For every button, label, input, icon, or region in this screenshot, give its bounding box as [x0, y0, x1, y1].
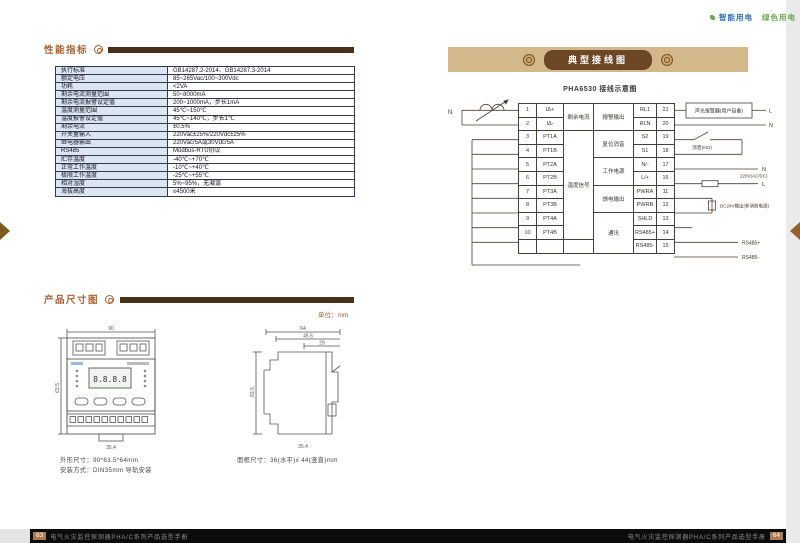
terminal-name-empty	[537, 239, 564, 253]
page-number-left: 63	[33, 532, 46, 541]
header-tagline: 智能用电 绿色用电	[710, 12, 796, 23]
terminal-no: 7	[519, 185, 537, 199]
diagram-title: PHA6530 接线示意图	[500, 84, 700, 94]
terminal-name: PWRA	[634, 185, 657, 199]
seal-icon	[105, 295, 114, 304]
table-row: RS485Modbus-RTU协议	[56, 147, 355, 155]
alarm-line-label: L	[769, 109, 772, 115]
spec-label-cell: 执行标准	[56, 67, 168, 75]
spec-value-cell: GB14287.2-2014、GB14287.3-2014	[168, 67, 355, 75]
spec-value-cell: -25℃~+55℃	[168, 172, 355, 180]
spec-value-cell: 200~1000mA，步长1mA	[168, 99, 355, 107]
terminal-no: 10	[519, 226, 537, 240]
spec-table: 执行标准GB14287.2-2014、GB14287.3-2014 额定电压85…	[55, 66, 355, 197]
spec-label-cell: 温度报警设定值	[56, 115, 168, 123]
lcd-display: 8.8.8.8	[93, 375, 127, 384]
terminal-no: 12	[657, 199, 675, 213]
table-row: 功耗<2VA	[56, 83, 355, 91]
terminal-name: RL1	[634, 104, 657, 118]
unit-label: 单位：mm	[318, 309, 348, 319]
leaf-icon	[710, 15, 715, 20]
fold-arrow-right-icon	[790, 222, 800, 240]
table-row: 1 IΔ+ 剩余电流 报警输出 RL1 21	[519, 104, 675, 118]
terminal-name: S2	[634, 131, 657, 145]
section-bar	[108, 47, 354, 53]
side-view-drawing: 64 45.5 29 63.5 35.4	[248, 326, 348, 454]
table-row: 7 PT3A 馈电输出 PWRA 11	[519, 185, 675, 199]
spec-value-cell: 45℃~150℃	[168, 107, 355, 115]
terminal-no: 21	[657, 104, 675, 118]
spec-value-cell: -40℃~+70℃	[168, 156, 355, 164]
table-row: 继电器输出220Vac/5A或30Vdc/5A	[56, 139, 355, 147]
spec-label-cell: RS485	[56, 147, 168, 155]
table-row: 海拔高度≤4500米	[56, 188, 355, 196]
feed-label: DC24V输出(非消防电源)	[720, 203, 770, 210]
alarm-neutral-label: N	[769, 123, 773, 129]
caption-panel: 面框尺寸：36(水平)x 44(竖直)mm	[237, 455, 338, 464]
terminal-name: PWRB	[634, 199, 657, 213]
table-row: 3 PT1A 温度信号 复位消音 S2 19	[519, 131, 675, 145]
tagline-smart: 智能用电	[719, 12, 753, 23]
terminal-no: 3	[519, 131, 537, 145]
terminal-no: 9	[519, 212, 537, 226]
coin-icon	[523, 54, 535, 66]
terminal-no: 14	[657, 226, 675, 240]
spec-label-cell: 贮存温度	[56, 156, 168, 164]
caption-mount: 安装方式：DIN35mm 导轨安装	[60, 465, 152, 474]
front-dim-left: 63.5	[55, 383, 61, 393]
terminal-table: 1 IΔ+ 剩余电流 报警输出 RL1 21 2 IΔ- RLN 20 3 PT…	[518, 103, 675, 254]
terminal-no: 8	[519, 199, 537, 213]
spec-label-cell: 剩余电流测量范围	[56, 91, 168, 99]
spec-label-cell: 温度测量范围	[56, 107, 168, 115]
section-bar	[120, 297, 354, 303]
terminal-no: 6	[519, 171, 537, 185]
group-residual-current: 剩余电流	[564, 104, 594, 131]
table-row: 额定电压85~265Vac/100~300Vdc	[56, 75, 355, 83]
rs485-plus-label: RS485+	[742, 241, 760, 247]
footer-bar: 63 电气火灾监控探测器PHA/C系列产品选型手册 电气火灾监控探测器PHA/C…	[30, 529, 786, 543]
section-title-performance: 性能指标	[44, 42, 88, 56]
side-dim-inner: 29	[319, 341, 325, 347]
fuse-icon	[702, 181, 718, 187]
side-dim-bottom: 35.4	[298, 444, 308, 450]
spec-value-cell: 220Vac/5A或30Vdc/5A	[168, 139, 355, 147]
spec-value-cell: 5%~95%，无凝露	[168, 180, 355, 188]
spec-value-cell: -10℃~+40℃	[168, 164, 355, 172]
table-row: 9 PT4A 通讯 SHLD 13	[519, 212, 675, 226]
terminal-no: 18	[657, 144, 675, 158]
terminal-name: N/-	[634, 158, 657, 172]
terminal-name: PT1B	[537, 144, 564, 158]
group-reset-mute: 复位消音	[594, 131, 634, 158]
caption-size: 外形尺寸：90*63.5*64mm	[60, 455, 138, 464]
group-empty	[564, 239, 594, 253]
table-row: 剩余电流测量范围50~8000mA	[56, 91, 355, 99]
terminal-name: SHLD	[634, 212, 657, 226]
spec-label-cell: 继电器输出	[56, 139, 168, 147]
terminal-name: RS485+	[634, 226, 657, 240]
spec-value-cell: ±0.5%	[168, 123, 355, 131]
group-alarm-output: 报警输出	[594, 104, 634, 131]
terminal-name: IΔ+	[537, 104, 564, 118]
terminal-name: RS485-	[634, 239, 657, 253]
terminal-no: 19	[657, 131, 675, 145]
terminal-no: 16	[657, 171, 675, 185]
alarm-box-label: 声光报警器(用户自备)	[695, 108, 744, 115]
spec-label-cell: 剩余电流报警设定值	[56, 99, 168, 107]
front-dim-bottom: 35.4	[106, 445, 116, 451]
terminal-no: 4	[519, 144, 537, 158]
terminal-name: S1	[634, 144, 657, 158]
spec-value-cell: Modbus-RTU协议	[168, 147, 355, 155]
terminal-name: PT3B	[537, 199, 564, 213]
terminal-name: PT2B	[537, 171, 564, 185]
footer-right-text: 电气火灾监控探测器PHA/C系列产品选型手册	[628, 532, 766, 541]
group-feed-output: 馈电输出	[594, 185, 634, 212]
terminal-no-empty	[519, 239, 537, 253]
spec-label-cell: 极限工作温度	[56, 172, 168, 180]
seal-icon	[94, 45, 103, 54]
terminal-name: PT4B	[537, 226, 564, 240]
terminal-name: PT3A	[537, 185, 564, 199]
terminal-name: PT2A	[537, 158, 564, 172]
side-dim-top: 64	[300, 326, 306, 332]
spec-label-cell: 额定电压	[56, 75, 168, 83]
banner-typical-wiring: 典型接线图	[448, 47, 748, 72]
mute-label: 消音(NO)	[692, 144, 712, 151]
terminal-name: PT4A	[537, 212, 564, 226]
spec-value-cell: 220Vac±25%/220Vdc±25%	[168, 131, 355, 139]
table-row: 贮存温度-40℃~+70℃	[56, 156, 355, 164]
spec-label-cell: 开关量输入	[56, 131, 168, 139]
table-row: 剩余电流报警设定值200~1000mA，步长1mA	[56, 99, 355, 107]
spec-label-cell: 正常工作温度	[56, 164, 168, 172]
spec-value-cell: <2VA	[168, 83, 355, 91]
footer-right: 电气火灾监控探测器PHA/C系列产品选型手册 64	[628, 532, 783, 541]
rs485-minus-label: RS485-	[742, 255, 759, 261]
table-row: 5 PT2A 工作电源 N/- 17	[519, 158, 675, 172]
terminal-no: 20	[657, 117, 675, 131]
table-row: 执行标准GB14287.2-2014、GB14287.3-2014	[56, 67, 355, 75]
front-dim-top: 90	[108, 326, 114, 332]
terminal-no: 17	[657, 158, 675, 172]
fold-arrow-left-icon	[0, 222, 10, 240]
front-view-drawing: 90 63.5 35.4 8.8.8.8	[55, 326, 167, 454]
spec-value-cell: 45℃~140℃，步长1℃	[168, 115, 355, 123]
terminal-name: IΔ-	[537, 117, 564, 131]
page-number-right: 64	[770, 532, 783, 541]
section-title-dimensions: 产品尺寸图	[44, 292, 99, 306]
side-dim-mid: 45.5	[303, 334, 313, 340]
banner-title: 典型接线图	[544, 50, 652, 70]
spec-label-cell: 功耗	[56, 83, 168, 91]
spec-label-cell: 相对湿度	[56, 180, 168, 188]
group-comms: 通讯	[594, 212, 634, 253]
group-temperature-signal: 温度信号	[564, 131, 594, 240]
corner-strip	[0, 529, 30, 543]
footer-left: 63 电气火灾监控探测器PHA/C系列产品选型手册	[33, 532, 188, 541]
spec-label-cell: 剩余电流	[56, 123, 168, 131]
table-row: 相对湿度5%~95%，无凝露	[56, 180, 355, 188]
tagline-green: 绿色用电	[762, 12, 796, 23]
spec-label-cell: 海拔高度	[56, 188, 168, 196]
terminal-name: RLN	[634, 117, 657, 131]
table-row: 温度报警设定值45℃~140℃，步长1℃	[56, 115, 355, 123]
terminal-no: 5	[519, 158, 537, 172]
terminal-no: 15	[657, 239, 675, 253]
neutral-label: N	[448, 110, 452, 116]
spec-value-cell: 85~265Vac/100~300Vdc	[168, 75, 355, 83]
footer-left-text: 电气火灾监控探测器PHA/C系列产品选型手册	[50, 532, 188, 541]
section-header-performance: 性能指标	[44, 42, 103, 56]
side-dim-left: 63.5	[250, 387, 256, 397]
power-voltage-label: 220V(AC/DC)	[740, 174, 768, 179]
table-row: 温度测量范围45℃~150℃	[56, 107, 355, 115]
table-row: 剩余电流±0.5%	[56, 123, 355, 131]
terminal-no: 11	[657, 185, 675, 199]
power-n-label: N	[762, 167, 766, 173]
terminal-name: PT1A	[537, 131, 564, 145]
terminal-no: 13	[657, 212, 675, 226]
spec-value-cell: 50~8000mA	[168, 91, 355, 99]
table-row: 正常工作温度-10℃~+40℃	[56, 164, 355, 172]
spec-value-cell: ≤4500米	[168, 188, 355, 196]
terminal-no: 1	[519, 104, 537, 118]
terminal-no: 2	[519, 117, 537, 131]
terminal-name: L/+	[634, 171, 657, 185]
section-header-dimensions: 产品尺寸图	[44, 292, 114, 306]
group-working-power: 工作电源	[594, 158, 634, 185]
coin-icon	[661, 54, 673, 66]
power-l-label: L	[762, 182, 765, 188]
catalog-spread: 智能用电 绿色用电 性能指标 执行标准GB14287.2-2014、GB1428…	[0, 0, 800, 543]
table-row: 开关量输入220Vac±25%/220Vdc±25%	[56, 131, 355, 139]
table-row: 极限工作温度-25℃~+55℃	[56, 172, 355, 180]
